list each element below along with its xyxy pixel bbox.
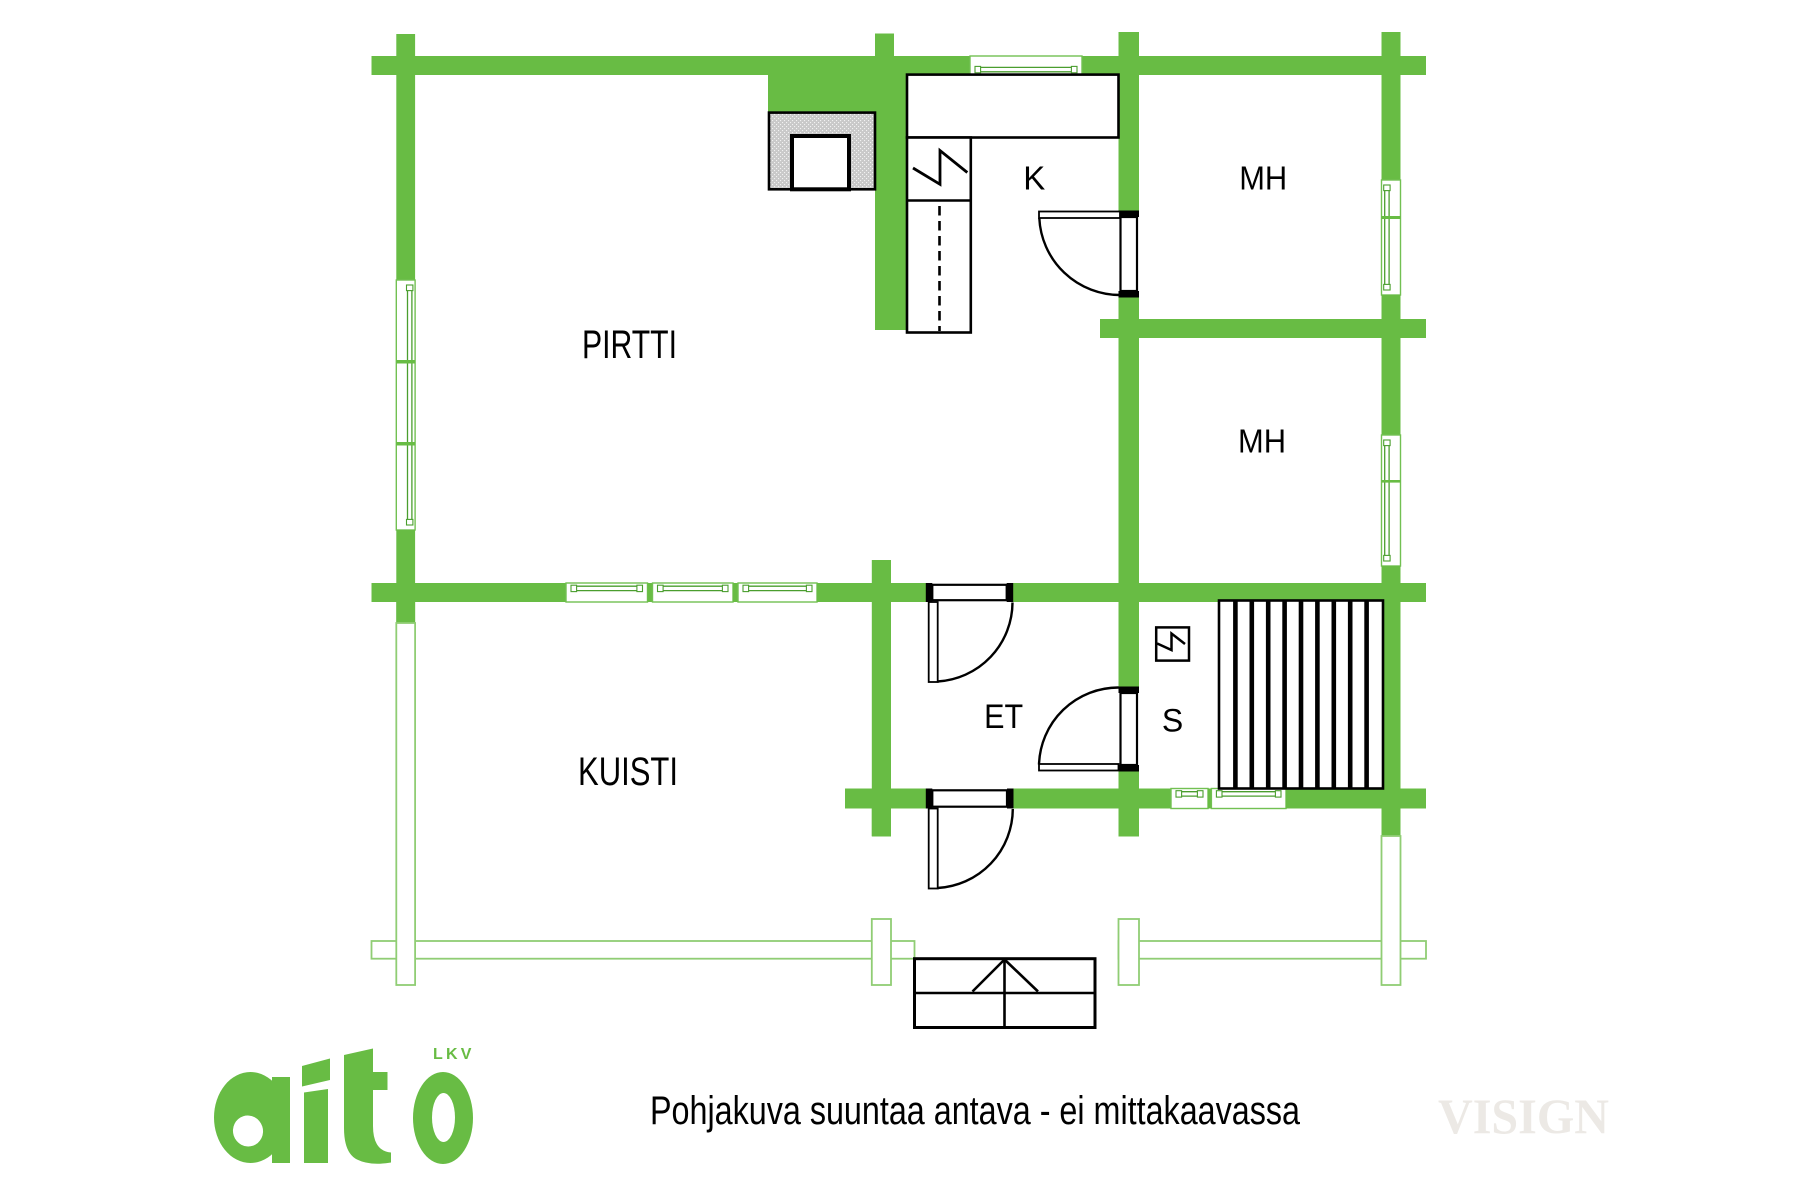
svg-text:VISIGN: VISIGN — [1438, 1088, 1609, 1144]
svg-text:KUISTI: KUISTI — [578, 750, 678, 794]
svg-text:MH: MH — [1239, 159, 1287, 196]
svg-text:K: K — [1023, 159, 1045, 196]
svg-text:LKV: LKV — [433, 1046, 475, 1063]
svg-text:S: S — [1162, 702, 1183, 738]
svg-text:MH: MH — [1238, 422, 1286, 459]
svg-text:PIRTTI: PIRTTI — [582, 323, 677, 367]
svg-text:Pohjakuva suuntaa antava - ei: Pohjakuva suuntaa antava - ei mittakaava… — [650, 1089, 1301, 1133]
svg-text:ET: ET — [984, 698, 1023, 736]
